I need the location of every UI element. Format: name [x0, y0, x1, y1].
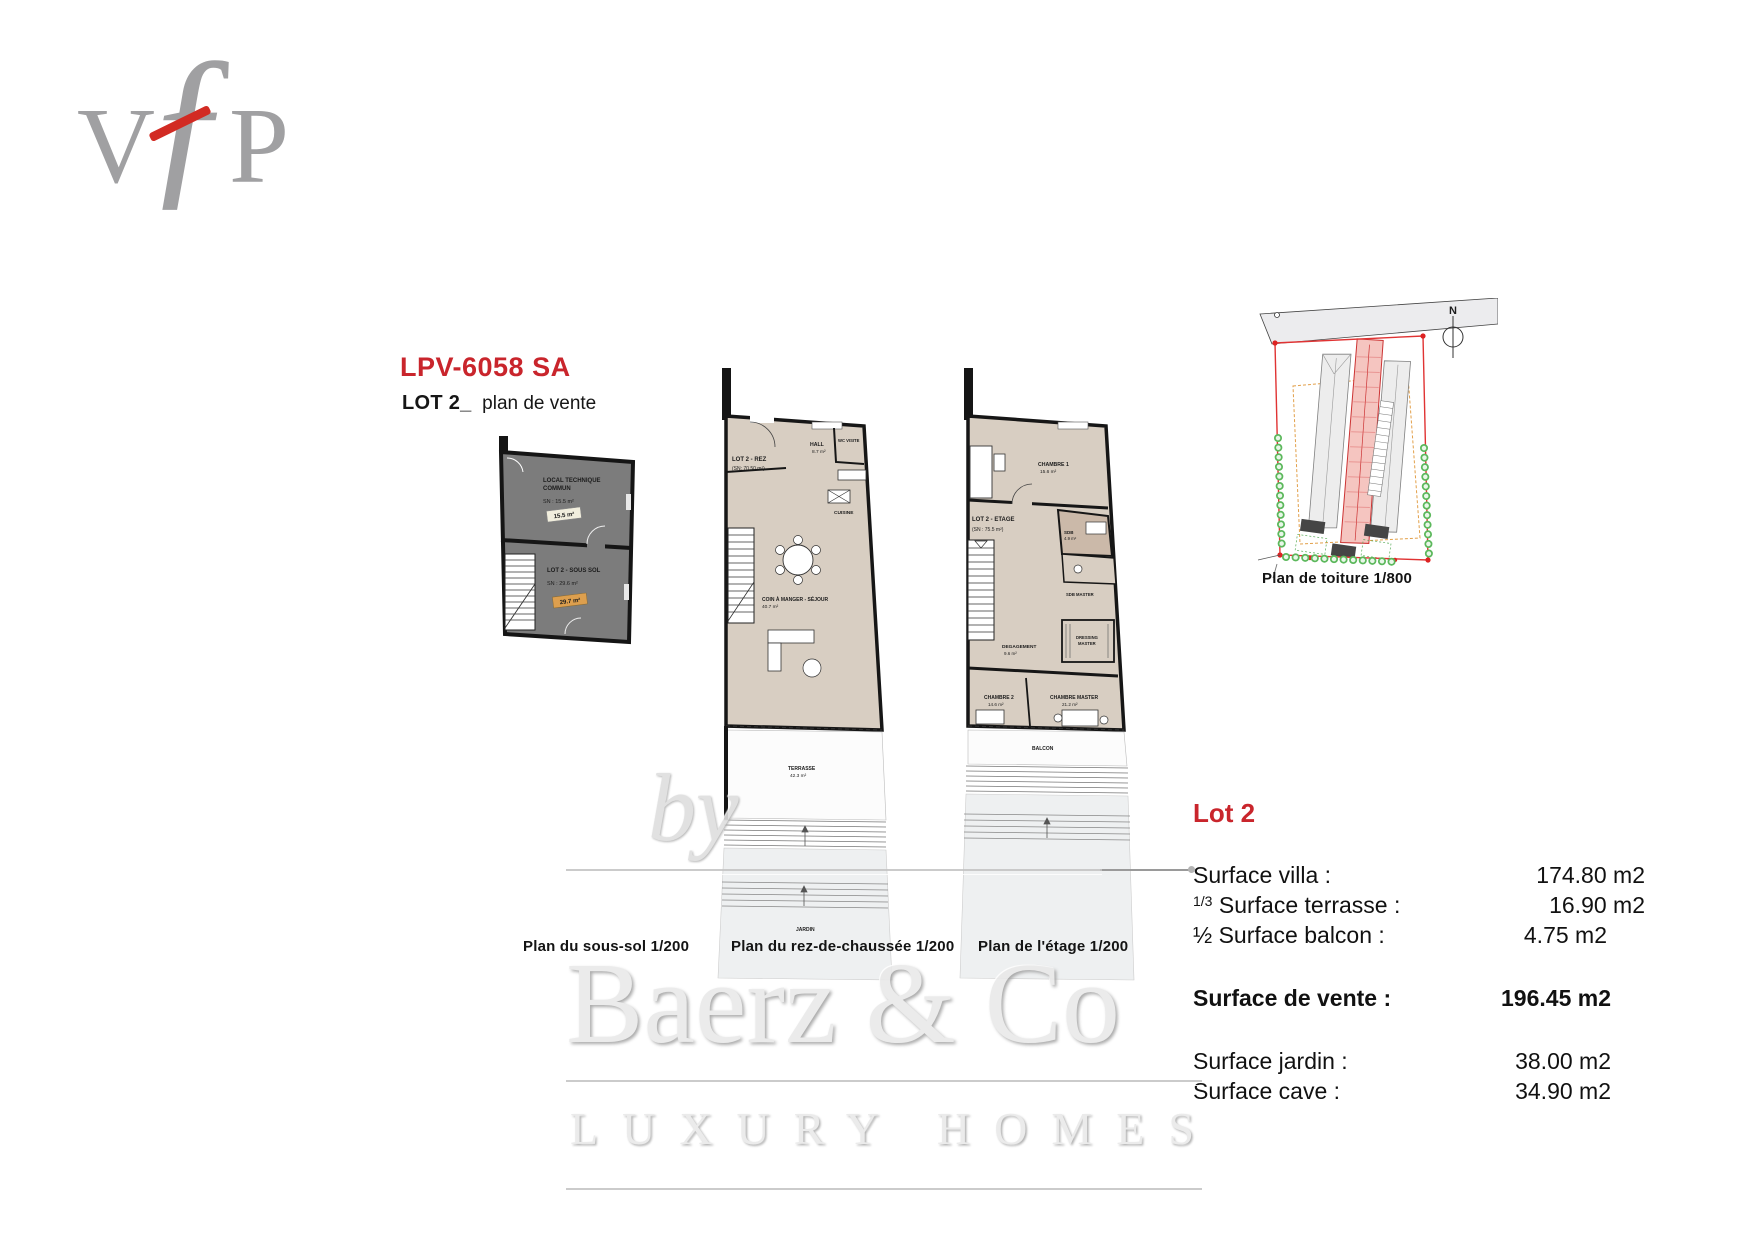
dressing-label2: MASTER — [1078, 641, 1096, 646]
lot-label: LOT 2 - ETAGE — [972, 517, 1015, 523]
lot-area: (SN : 75.5 m²) — [972, 527, 1004, 533]
caption-roof: Plan de toiture 1/800 — [1262, 570, 1412, 587]
bed — [1062, 710, 1098, 726]
door-gap — [1012, 498, 1032, 508]
lot-subtitle-line: LOT 2_ plan de vente — [402, 392, 596, 415]
bed — [976, 710, 1004, 724]
living-label: COIN À MANGER - SÉJOUR — [762, 595, 829, 603]
master-area: 21.2 m² — [1062, 702, 1078, 707]
garden — [718, 848, 892, 980]
chair — [794, 576, 803, 585]
terrace-label: TERRASSE — [788, 766, 816, 772]
lot-label: LOT 2_ — [402, 392, 472, 414]
window — [626, 494, 631, 510]
garden-outline — [1295, 534, 1327, 554]
dining-table — [783, 545, 813, 575]
row-balcon-value: 4.75 m2 — [1524, 922, 1607, 949]
bedroom2-area: 14.6 m² — [988, 702, 1004, 707]
logo-letter-p: P — [229, 85, 289, 209]
chair — [812, 546, 821, 555]
caption-basement: Plan du sous-sol 1/200 — [523, 938, 689, 955]
survey-point — [1275, 313, 1280, 318]
sofa — [768, 630, 814, 643]
terrace-area: 42.3 m² — [790, 773, 807, 779]
window — [1058, 422, 1088, 429]
door-gap — [587, 538, 605, 550]
master-label: CHAMBRE MASTER — [1050, 695, 1098, 701]
vfp-logo: V ƒ P — [77, 57, 293, 209]
wall-stub — [964, 368, 973, 420]
row-cave-value: 34.90 m2 — [1515, 1078, 1611, 1105]
boundary-dot — [1420, 333, 1425, 338]
boundary-extension — [1258, 555, 1280, 560]
row-terrasse-label: 1/3 Surface terrasse : — [1193, 892, 1400, 919]
living-area: 40.7 m² — [762, 604, 779, 610]
hall-area: 8.7 m² — [812, 449, 826, 455]
svg-text:N: N — [1449, 305, 1457, 317]
bedroom1-area: 15.6 m² — [1040, 469, 1057, 475]
room-label: COMMUN — [543, 486, 571, 492]
roof-site-plan: N — [1248, 298, 1498, 598]
lot-sublabel: plan de vente — [482, 393, 596, 414]
row-balcon-label: ½ Surface balcon : — [1193, 922, 1385, 949]
bath-area: 4.9 m² — [1064, 536, 1077, 541]
reference-title: LPV-6058 SA — [400, 352, 571, 383]
coffee-table — [803, 659, 821, 677]
nightstand — [1054, 714, 1062, 722]
table-title: Lot 2 — [1193, 798, 1255, 829]
room-label: LOT 2 - SOUS SOL — [547, 568, 601, 574]
window — [812, 422, 842, 429]
washbasin — [994, 454, 1005, 471]
leader-line — [1100, 869, 1192, 871]
leader-dot — [1188, 866, 1195, 873]
room-area: SN : 29.6 m² — [547, 581, 578, 587]
railing-lines — [966, 766, 1128, 793]
caption-upper: Plan de l'étage 1/200 — [978, 938, 1128, 955]
bathtub — [1086, 522, 1106, 534]
row-villa-label: Surface villa : — [1193, 862, 1331, 889]
ground-floorplan: WC VISITE HALL 8.7 m² LOT 2 - REZ (SN: 7… — [716, 368, 896, 983]
wc-master — [1062, 554, 1116, 584]
lot-label: LOT 2 - REZ — [732, 457, 767, 463]
basement-floorplan: LOCAL TECHNIQUE COMMUN SN : 15.5 m² 15.5… — [495, 436, 645, 651]
row-total-label: Surface de vente : — [1193, 985, 1391, 1012]
nightstand — [1100, 716, 1108, 724]
sofa — [768, 643, 781, 671]
staircase — [505, 554, 535, 630]
chair — [812, 566, 821, 575]
watermark-rule-bottom — [566, 1188, 1202, 1194]
closet — [970, 446, 992, 498]
room-area: SN : 15.5 m² — [543, 499, 574, 505]
wc-label: WC VISITE — [838, 438, 860, 443]
kitchen-counter — [838, 470, 866, 480]
balcony-label: BALCON — [1032, 746, 1054, 752]
kitchen-label: CUISINE — [834, 510, 854, 516]
upper-floorplan: CHAMBRE 1 15.6 m² LOT 2 - ETAGE (SN : 75… — [958, 368, 1138, 983]
boundary-dot — [1425, 557, 1430, 562]
garden-label: JARDIN — [796, 927, 815, 933]
row-terrasse-value: 16.90 m2 — [1549, 892, 1645, 919]
dressing-label: DRESSING — [1076, 635, 1098, 640]
washbasin — [1074, 565, 1082, 573]
row-jardin-value: 38.00 m2 — [1515, 1048, 1611, 1075]
hallway-label: DEGAGEMENT — [1002, 644, 1036, 650]
road — [1260, 298, 1498, 344]
plan-sheet: V ƒ P LPV-6058 SA LOT 2_ plan de vente L… — [0, 0, 1754, 1241]
buildings — [1295, 332, 1423, 563]
bedroom1-label: CHAMBRE 1 — [1038, 462, 1069, 468]
bath-master-label: SDB MASTER — [1066, 592, 1094, 597]
watermark-rule-mid — [566, 1080, 1202, 1086]
chair — [776, 566, 785, 575]
hall-label: HALL — [810, 442, 825, 448]
room-label: LOCAL TECHNIQUE — [543, 478, 601, 484]
hallway-area: 9.6 m² — [1004, 651, 1017, 656]
row-cave-label: Surface cave : — [1193, 1078, 1340, 1105]
wall-stub — [499, 436, 508, 452]
row-jardin-label: Surface jardin : — [1193, 1048, 1348, 1075]
caption-ground: Plan du rez-de-chaussée 1/200 — [731, 938, 954, 955]
entrance-gap — [750, 415, 774, 423]
fraction-one-half: ½ — [1193, 922, 1219, 948]
boundary-dot — [1272, 340, 1277, 345]
window — [624, 584, 629, 600]
wall-stub — [722, 368, 731, 420]
hedge-right — [1424, 448, 1429, 556]
bath-label: SDB — [1064, 530, 1074, 535]
chair — [776, 546, 785, 555]
fraction-one-third: 1/3 — [1193, 893, 1212, 909]
bedroom2-label: CHAMBRE 2 — [984, 695, 1014, 701]
lot-area: (SN: 70.50 m²) — [732, 466, 765, 472]
chair — [794, 536, 803, 545]
watermark-tagline: LUXURY HOMES — [570, 1102, 1218, 1155]
row-total-value: 196.45 m2 — [1501, 985, 1611, 1012]
row-villa-value: 174.80 m2 — [1536, 862, 1645, 889]
